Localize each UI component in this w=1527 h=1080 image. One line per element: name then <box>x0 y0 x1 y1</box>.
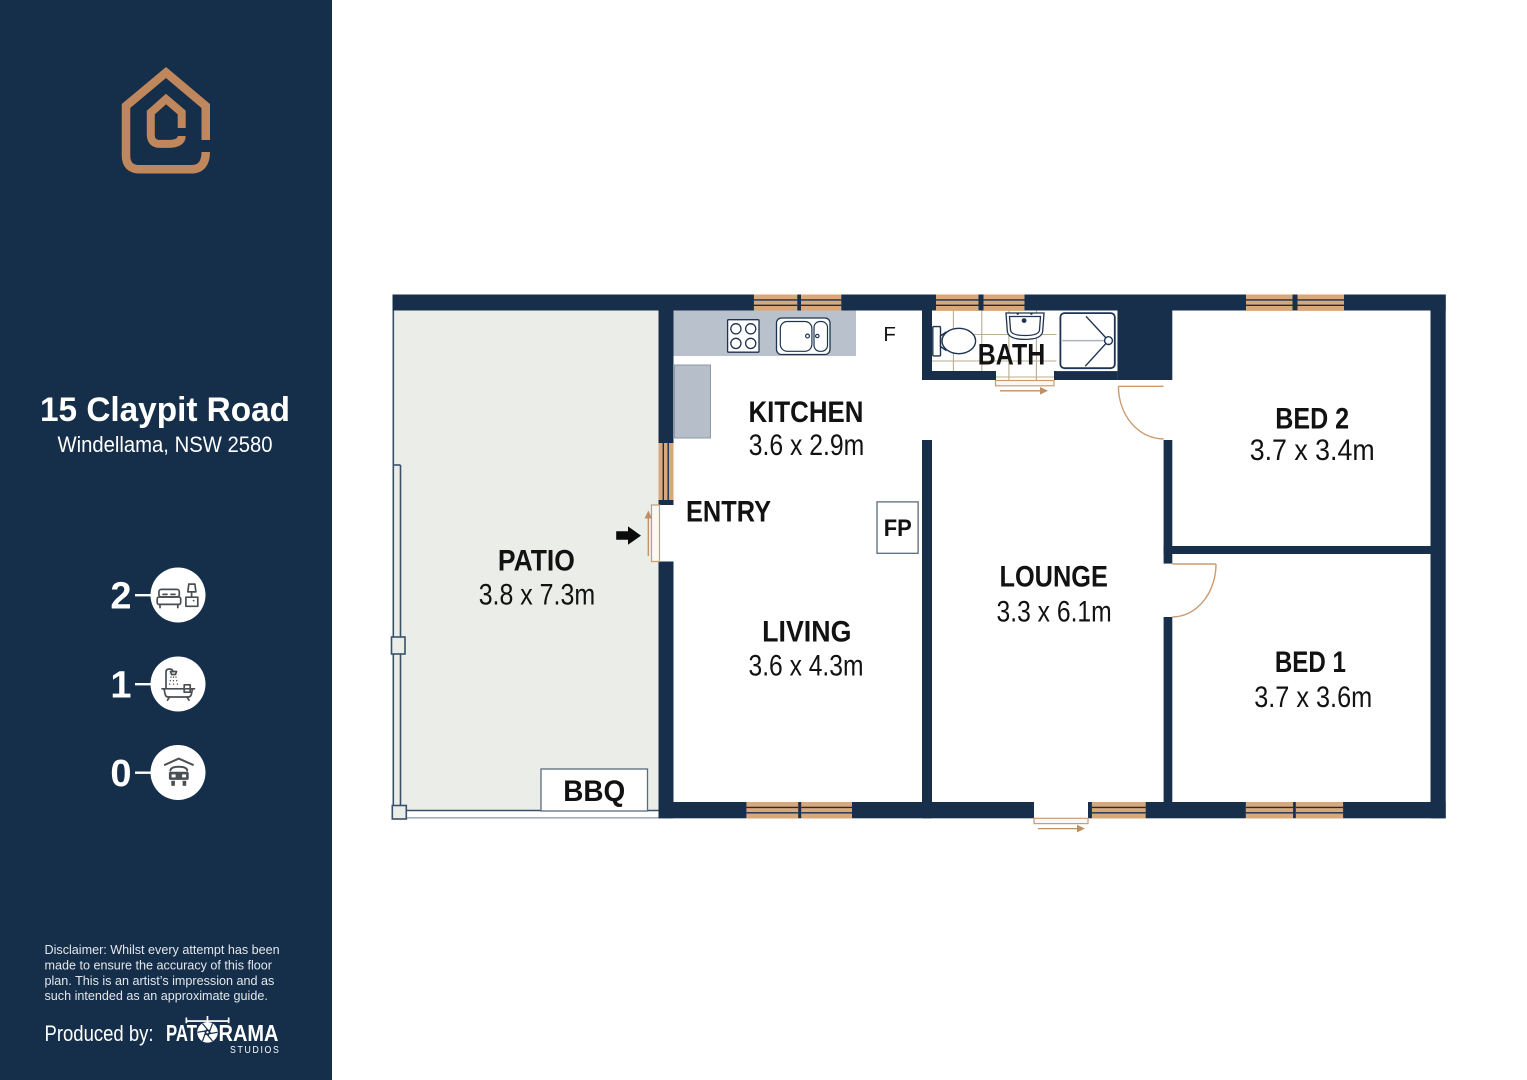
svg-text:FP: FP <box>884 515 912 542</box>
svg-text:BATH: BATH <box>978 339 1045 372</box>
svg-text:PAT: PAT <box>166 1020 197 1046</box>
svg-text:such intended as an approximat: such intended as an approximate guide. <box>45 989 268 1003</box>
svg-text:BBQ: BBQ <box>563 775 625 808</box>
svg-text:LIVING: LIVING <box>762 616 851 649</box>
svg-text:F: F <box>883 323 896 346</box>
svg-text:RAMA: RAMA <box>219 1020 279 1046</box>
svg-text:3.3 x 6.1m: 3.3 x 6.1m <box>997 596 1112 629</box>
svg-text:Disclaimer: Whilst every attem: Disclaimer: Whilst every attempt has bee… <box>45 943 280 957</box>
svg-text:ENTRY: ENTRY <box>686 496 771 529</box>
svg-text:1: 1 <box>110 665 131 707</box>
svg-text:STUDIOS: STUDIOS <box>230 1044 281 1056</box>
svg-text:made to ensure the accuracy of: made to ensure the accuracy of this floo… <box>45 958 273 972</box>
svg-text:PATIO: PATIO <box>498 545 575 578</box>
svg-text:BED 1: BED 1 <box>1275 646 1346 679</box>
svg-text:0: 0 <box>110 753 131 795</box>
svg-text:3.8 x 7.3m: 3.8 x 7.3m <box>479 579 595 612</box>
svg-text:Windellama, NSW 2580: Windellama, NSW 2580 <box>58 432 273 457</box>
svg-text:Produced by:: Produced by: <box>45 1021 154 1046</box>
svg-text:KITCHEN: KITCHEN <box>749 396 864 429</box>
svg-text:3.6 x 4.3m: 3.6 x 4.3m <box>749 650 864 683</box>
svg-text:15 Claypit Road: 15 Claypit Road <box>40 391 290 429</box>
svg-text:2: 2 <box>110 576 131 618</box>
svg-text:3.7 x 3.4m: 3.7 x 3.4m <box>1250 434 1375 467</box>
svg-text:BED 2: BED 2 <box>1275 402 1349 435</box>
svg-text:3.6 x 2.9m: 3.6 x 2.9m <box>749 429 865 462</box>
svg-text:LOUNGE: LOUNGE <box>1000 560 1108 593</box>
svg-text:plan. This is an artist’s impr: plan. This is an artist’s impression and… <box>45 974 275 988</box>
svg-text:3.7 x 3.6m: 3.7 x 3.6m <box>1254 681 1372 714</box>
